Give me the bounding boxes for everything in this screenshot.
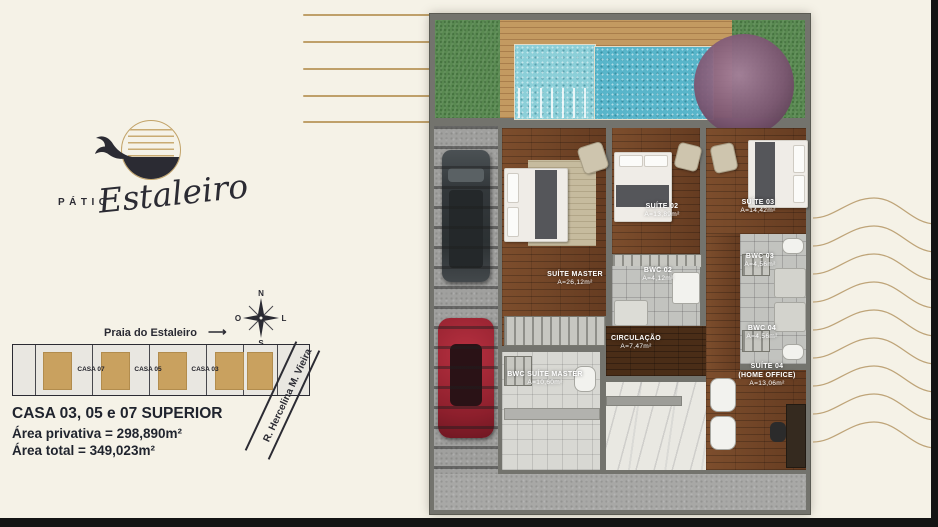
decor-line xyxy=(303,41,431,43)
siteplan-strip: CASA 07 CASA 05 CASA 03 xyxy=(12,344,310,396)
label-bwc-04: BWC 04A=4,56m² xyxy=(722,324,802,342)
decor-line xyxy=(303,14,431,16)
pergola-slats xyxy=(434,126,498,474)
label-suite-04: SUÍTE 04(HOME OFFICE)A=13,06m² xyxy=(727,362,807,389)
label-suite-master: SUÍTE MASTERA=26,12m² xyxy=(535,270,615,288)
closet-suite-master xyxy=(504,316,606,346)
compass-l: L xyxy=(282,314,287,323)
floorplan-poster: PÁTIO Estaleiro N L S O Praia do Estalei… xyxy=(0,0,938,527)
summary-block: CASA 03, 05 e 07 SUPERIOR Área privativa… xyxy=(12,405,222,458)
decor-line xyxy=(303,121,431,123)
sun-lines-icon xyxy=(128,129,174,157)
lot-footprint xyxy=(247,352,273,390)
floorplan: SUÍTE MASTERA=26,12m² SUÍTE 02A=13,89m² … xyxy=(430,14,810,514)
decor-line xyxy=(303,68,431,70)
decor-waves xyxy=(813,192,936,454)
brand-script: Estaleiro xyxy=(96,166,250,220)
pool-steps xyxy=(518,88,590,118)
lot-divider xyxy=(35,345,36,395)
label-bwc-02: BWC 02A=4,12m² xyxy=(618,266,698,284)
right-edge-bar xyxy=(931,0,938,527)
tree xyxy=(694,34,794,136)
shower-bwc-02 xyxy=(614,300,648,326)
compass-rose-icon: N L S O xyxy=(234,288,288,346)
arrow-right-icon: ⟶ xyxy=(200,324,227,339)
decor-line xyxy=(303,95,431,97)
compass-o: O xyxy=(235,314,241,323)
lot-label-casa-07: CASA 07 xyxy=(69,366,113,373)
bed-suite-master xyxy=(504,168,568,242)
label-bwc-03: BWC 03A=4,56m² xyxy=(720,252,800,270)
beach-label: Praia do Estaleiro ⟶ xyxy=(104,324,227,340)
lot-label-casa-03: CASA 03 xyxy=(183,366,227,373)
lot-footprint xyxy=(43,352,72,390)
label-circulacao: CIRCULAÇÃOA=7,47m² xyxy=(596,334,676,352)
desk-chair-suite-04 xyxy=(770,422,786,442)
summary-total-area: Área total = 349,023m² xyxy=(12,443,222,458)
toilet-bwc-04 xyxy=(782,344,804,360)
shower-bwc-03 xyxy=(774,268,806,298)
summary-title: CASA 03, 05 e 07 SUPERIOR xyxy=(12,405,222,423)
stair-landing xyxy=(606,396,682,406)
driveway xyxy=(434,126,498,474)
sidewalk xyxy=(434,474,806,510)
lot-label-casa-05: CASA 05 xyxy=(126,366,170,373)
label-suite-03: SUÍTE 03A=14,42m² xyxy=(718,198,798,216)
lot-divider xyxy=(277,345,278,395)
label-suite-02: SUÍTE 02A=13,89m² xyxy=(622,202,702,220)
label-bwc-suite-master: BWC SUÍTE MASTERA=10,60m² xyxy=(505,370,585,388)
compass-n: N xyxy=(258,289,264,298)
bottom-edge-bar xyxy=(0,518,938,527)
vanity-bwc-master xyxy=(504,408,600,420)
whale-tail-icon xyxy=(92,130,134,160)
desk-suite-04 xyxy=(786,404,806,468)
summary-private-area: Área privativa = 298,890m² xyxy=(12,426,222,441)
guest-chair-2 xyxy=(710,416,736,450)
beach-label-text: Praia do Estaleiro xyxy=(104,327,197,339)
